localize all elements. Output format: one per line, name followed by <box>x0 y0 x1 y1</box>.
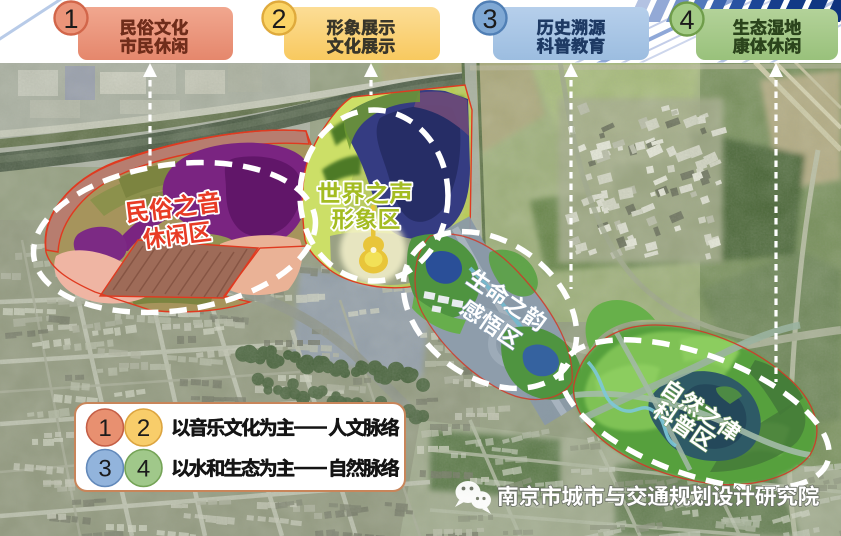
svg-text:4: 4 <box>679 5 694 35</box>
svg-text:1: 1 <box>98 415 111 442</box>
svg-text:3: 3 <box>98 456 111 483</box>
svg-text:4: 4 <box>137 456 150 483</box>
svg-text:2: 2 <box>271 4 286 34</box>
svg-text:2: 2 <box>137 415 150 442</box>
svg-text:1: 1 <box>63 4 78 34</box>
svg-text:3: 3 <box>482 4 497 34</box>
